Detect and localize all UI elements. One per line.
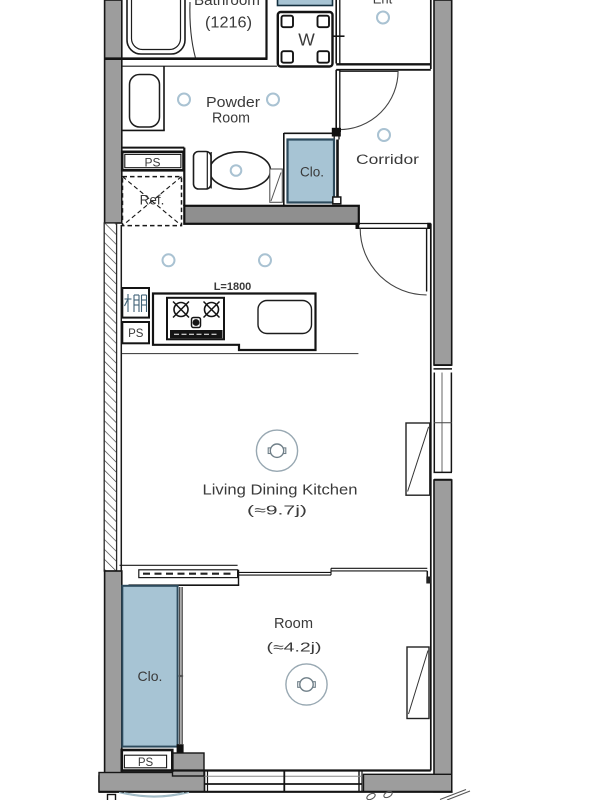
svg-text:PS: PS bbox=[138, 757, 154, 769]
svg-text:(≈4.2j): (≈4.2j) bbox=[267, 640, 322, 655]
svg-text:Ent: Ent bbox=[373, 0, 393, 7]
svg-text:L=1800: L=1800 bbox=[214, 281, 252, 293]
svg-text:W: W bbox=[298, 30, 315, 50]
svg-text:Bathroom: Bathroom bbox=[194, 0, 260, 9]
svg-text:Clo.: Clo. bbox=[138, 668, 163, 684]
svg-text:Ref.: Ref. bbox=[140, 193, 165, 208]
svg-text:PS: PS bbox=[128, 328, 144, 340]
svg-text:PS: PS bbox=[144, 156, 160, 170]
svg-text:Clo.: Clo. bbox=[300, 165, 324, 180]
svg-text:Powder: Powder bbox=[206, 95, 260, 111]
svg-text:(≈9.7j): (≈9.7j) bbox=[247, 503, 307, 518]
svg-text:Room: Room bbox=[212, 111, 250, 127]
svg-text:Corridor: Corridor bbox=[356, 152, 420, 167]
svg-text:Living Dining Kitchen: Living Dining Kitchen bbox=[203, 483, 358, 499]
svg-text:Room: Room bbox=[274, 616, 313, 632]
svg-text:(1216): (1216) bbox=[205, 15, 252, 32]
